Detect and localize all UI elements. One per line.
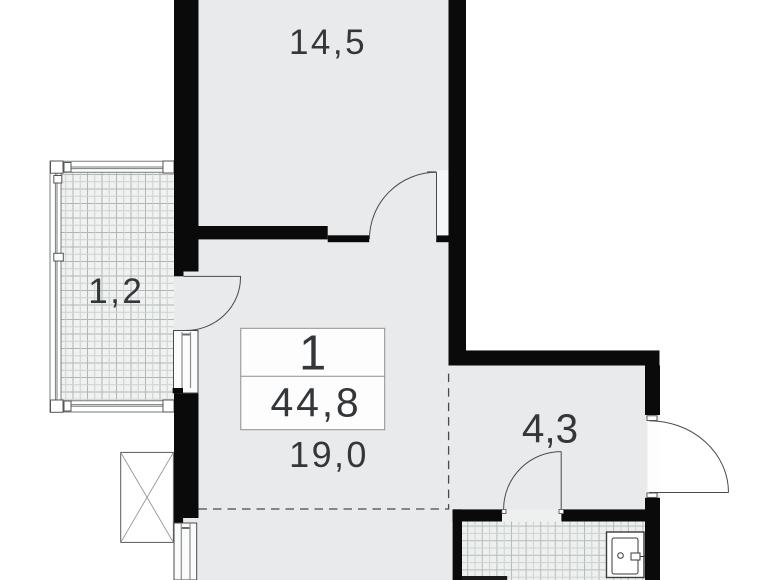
svg-text:1,2: 1,2 bbox=[88, 272, 144, 311]
svg-text:19,0: 19,0 bbox=[289, 434, 369, 475]
svg-text:4,3: 4,3 bbox=[522, 405, 578, 451]
svg-text:14,5: 14,5 bbox=[289, 23, 367, 62]
svg-text:1: 1 bbox=[299, 327, 326, 381]
svg-text:44,8: 44,8 bbox=[271, 380, 362, 426]
